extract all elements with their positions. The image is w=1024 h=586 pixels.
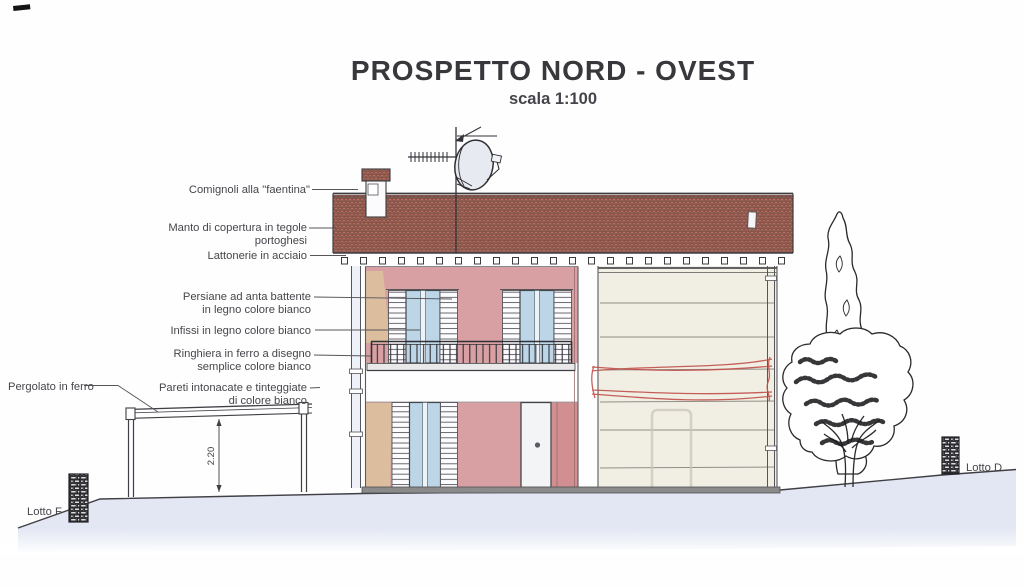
balcony-railing <box>371 342 572 364</box>
label-lattonerie: Lattonerie in acciaio <box>207 250 307 262</box>
elevation-drawing: 2.20 <box>0 0 1024 586</box>
pergola-height-dimension: 2.20 <box>206 419 222 492</box>
page-title: PROSPETTO NORD - OVEST <box>351 55 755 86</box>
label-lotto-d: Lotto D <box>966 462 1002 474</box>
label-comignoli: Comignoli alla "faentina" <box>189 184 310 196</box>
balcony-slab <box>367 364 575 371</box>
label-lotto-f: Lotto F <box>27 506 62 518</box>
chimney <box>362 169 390 217</box>
entrance-door <box>521 403 551 488</box>
label-persiane-line2: in legno colore bianco <box>202 304 311 316</box>
label-persiane-line1: Persiane ad anta battente <box>183 291 311 303</box>
label-ringhiera-line2: semplice colore bianco <box>197 361 311 373</box>
label-manto-line1: Manto di copertura in tegole <box>168 222 307 234</box>
scan-artifact-mark <box>13 4 30 11</box>
boundary-pillar-left <box>69 474 88 522</box>
roof-vent <box>748 212 757 228</box>
facade-right-section <box>598 266 777 487</box>
label-manto-line2: portoghesi <box>255 235 307 247</box>
label-pergolato: Pergolato in ferro <box>8 381 94 393</box>
roof <box>333 194 793 267</box>
window-ground-floor <box>392 403 458 488</box>
building-base-band <box>362 487 780 493</box>
downpipe-left <box>350 262 363 488</box>
label-pareti-line1: Pareti intonacate e tinteggiate <box>159 382 307 394</box>
eaves-rafter-tails <box>338 256 790 266</box>
door-knob <box>535 442 540 447</box>
label-ringhiera-line1: Ringhiera in ferro a disegno <box>174 348 311 360</box>
label-infissi: Infissi in legno colore bianco <box>170 325 311 337</box>
satellite-dish <box>451 137 502 193</box>
pergola-height-value: 2.20 <box>206 447 217 466</box>
scale-label: scala 1:100 <box>509 90 597 108</box>
label-pareti-line2: di colore bianco <box>229 395 307 407</box>
scanned-elevation-page: 2.20 <box>0 0 1024 586</box>
boundary-pillar-right <box>942 437 959 474</box>
